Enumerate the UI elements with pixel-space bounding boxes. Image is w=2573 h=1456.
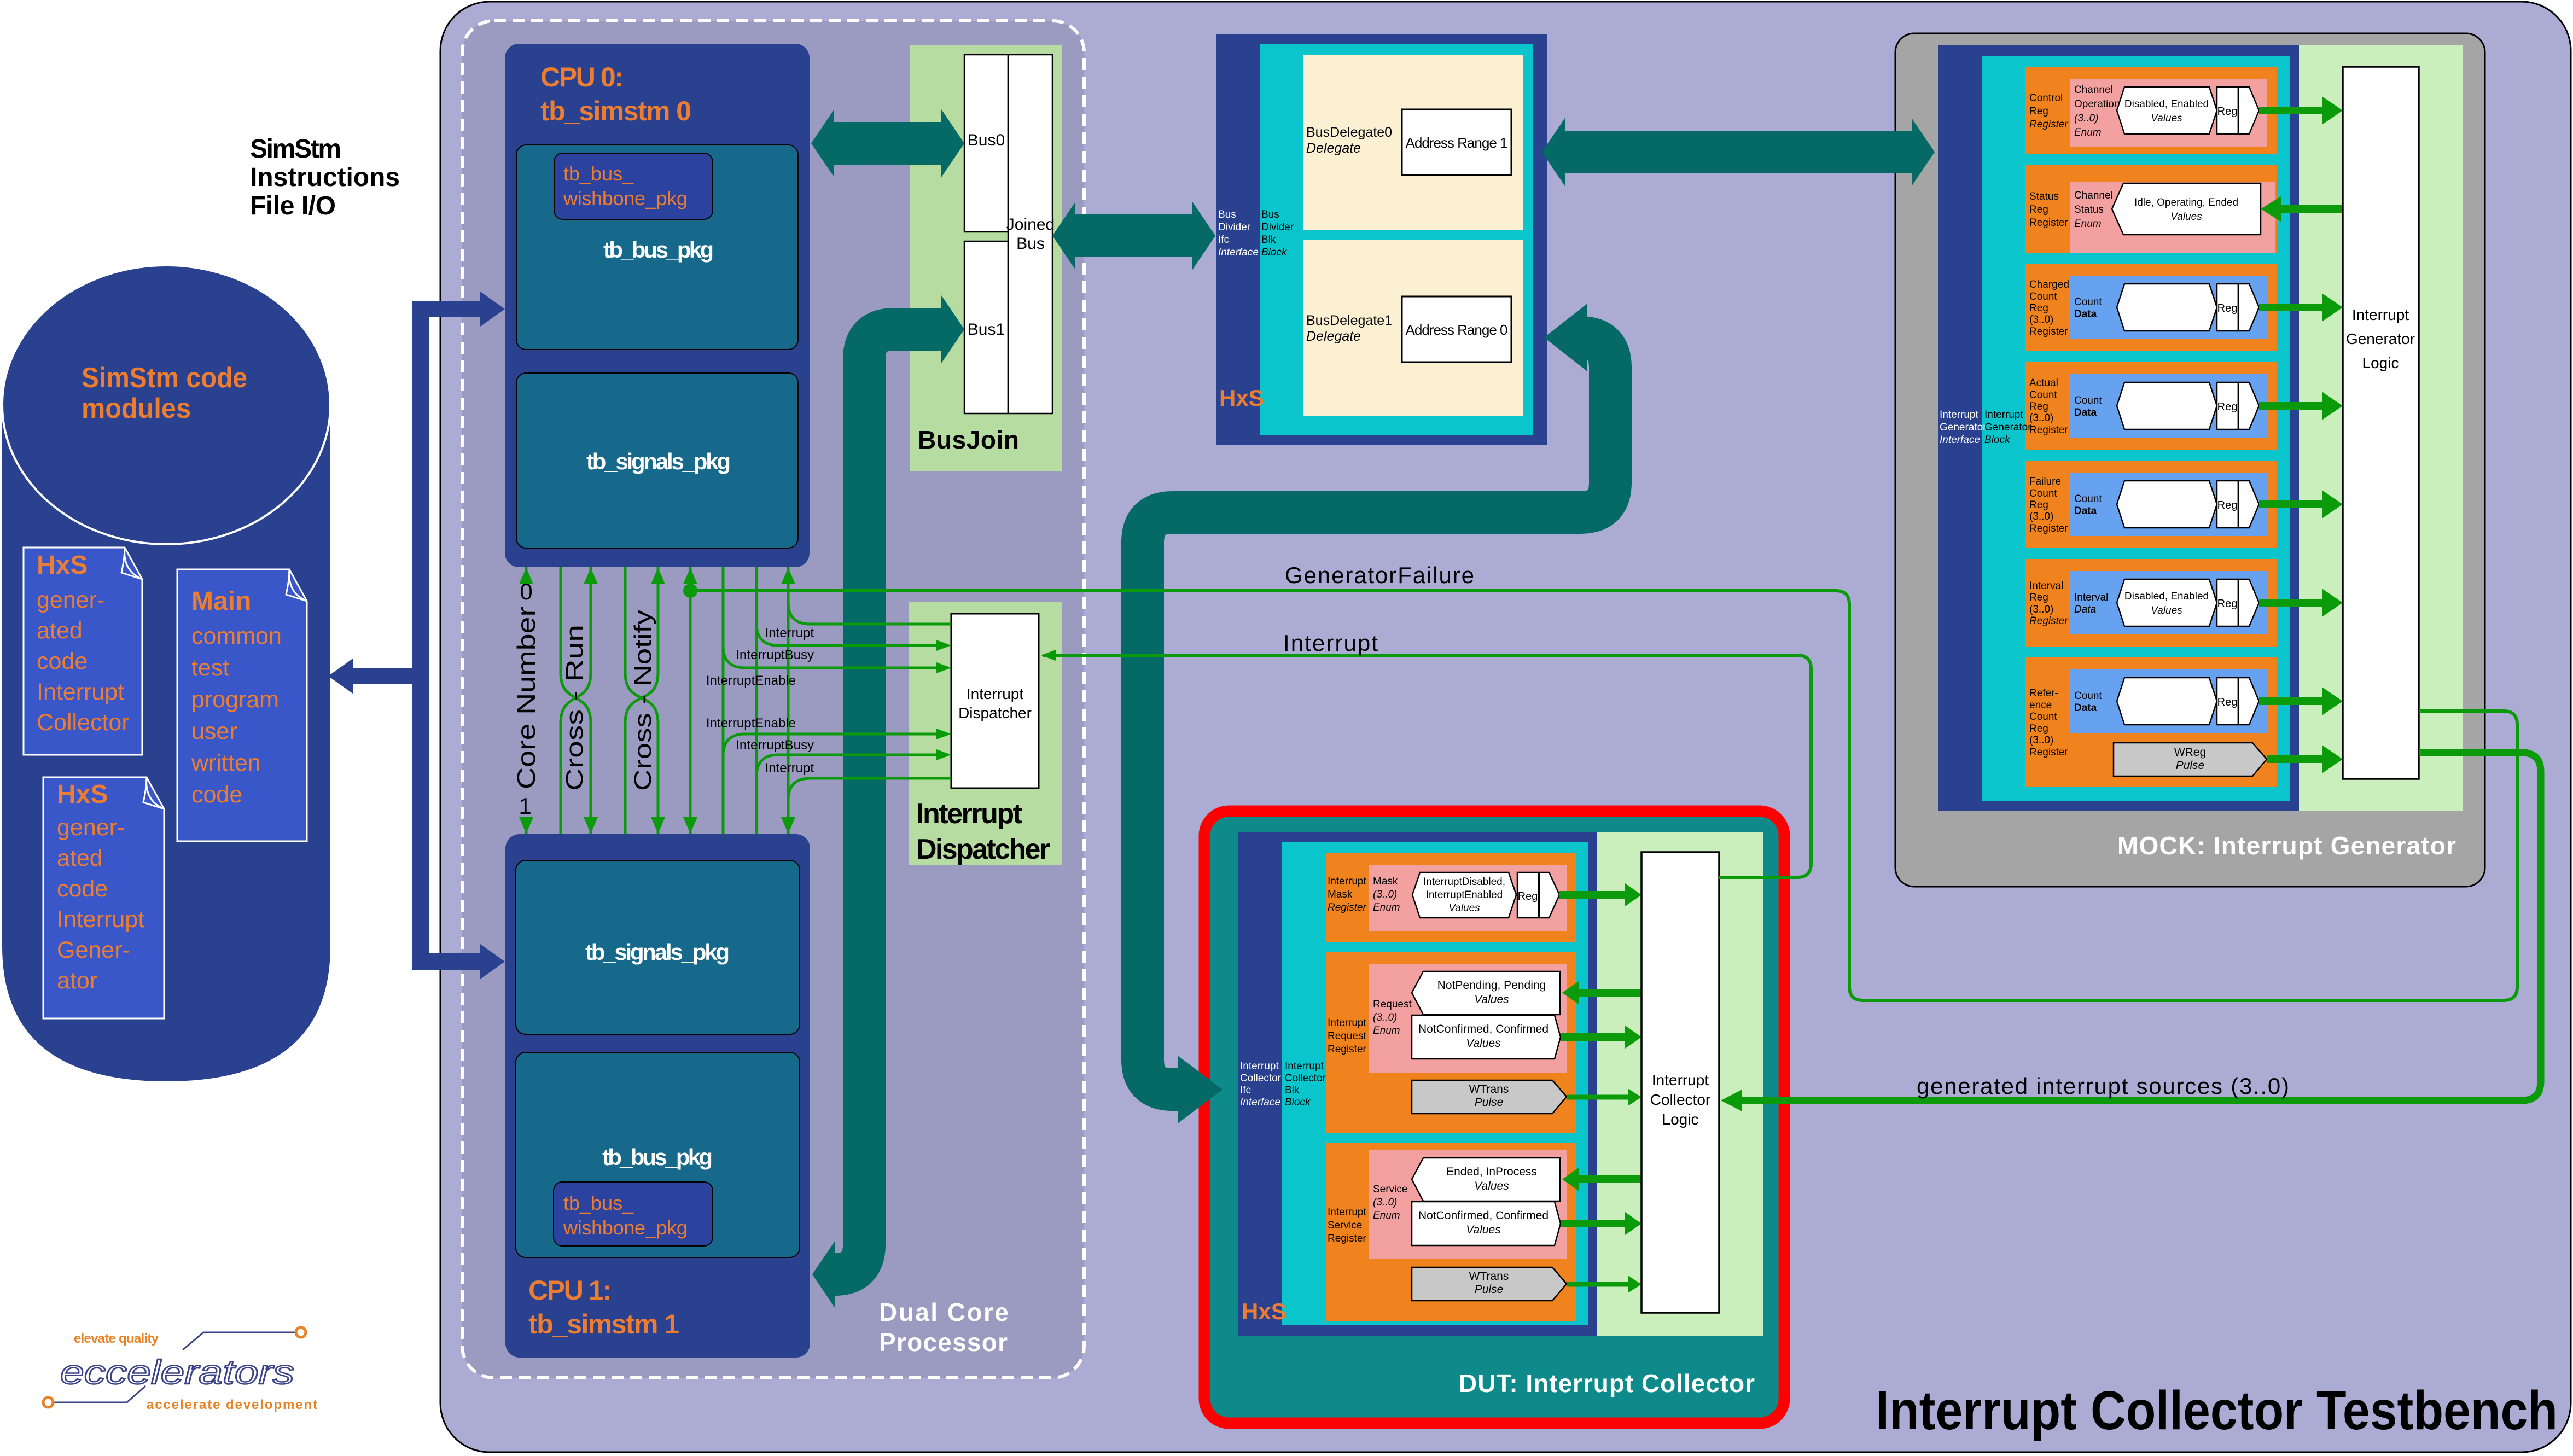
svg-text:BusDelegate1: BusDelegate1 <box>1306 313 1392 328</box>
svg-text:Reg: Reg <box>2217 696 2238 708</box>
svg-text:Blk: Blk <box>1285 1085 1300 1096</box>
svg-text:Reg: Reg <box>2029 302 2048 314</box>
svg-text:Collector: Collector <box>37 709 130 736</box>
svg-text:BusDelegate0: BusDelegate0 <box>1306 125 1392 140</box>
svg-text:Values: Values <box>1474 993 1509 1006</box>
svg-text:Blk: Blk <box>1261 234 1276 246</box>
svg-text:(3..0): (3..0) <box>2029 314 2053 325</box>
svg-text:Disabled, Enabled: Disabled, Enabled <box>2124 98 2209 110</box>
svg-text:Register: Register <box>1328 1044 1366 1055</box>
svg-text:Data: Data <box>2074 308 2097 320</box>
svg-text:Gener-: Gener- <box>57 937 130 963</box>
svg-text:Logic: Logic <box>1662 1111 1699 1128</box>
svg-text:Divider: Divider <box>1218 222 1251 233</box>
svg-text:Interrupt: Interrupt <box>1283 630 1378 656</box>
svg-text:wishbone_pkg: wishbone_pkg <box>563 1216 688 1239</box>
svg-text:Enum: Enum <box>2074 218 2102 230</box>
svg-text:Reg: Reg <box>2217 499 2238 511</box>
svg-text:Status: Status <box>2074 204 2104 216</box>
svg-text:Dispatcher: Dispatcher <box>958 704 1032 721</box>
svg-text:Pulse: Pulse <box>1475 1096 1504 1109</box>
svg-text:Mask: Mask <box>1328 889 1353 900</box>
svg-text:Ifc: Ifc <box>1240 1085 1251 1096</box>
svg-text:tb_bus_pkg: tb_bus_pkg <box>603 237 714 263</box>
svg-text:Generator: Generator <box>1940 422 1987 433</box>
svg-text:CPU 0:: CPU 0: <box>540 62 624 92</box>
svg-text:tb_simstm 0: tb_simstm 0 <box>540 96 691 126</box>
svg-text:Idle, Operating, Ended: Idle, Operating, Ended <box>2134 197 2238 208</box>
svg-text:Pulse: Pulse <box>2176 759 2205 772</box>
svg-text:Interrupt: Interrupt <box>1240 1061 1279 1072</box>
svg-text:Enum: Enum <box>1373 1025 1400 1036</box>
svg-text:InterruptBusy: InterruptBusy <box>736 738 814 753</box>
svg-text:generated interrupt sources (3: generated interrupt sources (3..0) <box>1917 1073 2289 1099</box>
svg-text:Actual: Actual <box>2029 377 2058 389</box>
svg-text:Count: Count <box>2074 493 2102 505</box>
svg-text:Register: Register <box>2029 523 2068 534</box>
svg-text:InterruptEnable: InterruptEnable <box>706 673 796 688</box>
svg-text:Interrupt: Interrupt <box>1328 1207 1366 1218</box>
svg-text:test: test <box>191 655 229 681</box>
svg-text:Reg: Reg <box>2029 592 2048 603</box>
svg-text:(3..0): (3..0) <box>1373 889 1397 900</box>
svg-text:Interrupt: Interrupt <box>916 798 1022 830</box>
svg-text:0: 0 <box>520 579 532 604</box>
svg-text:Refer-: Refer- <box>2029 688 2058 699</box>
svg-text:Instructions: Instructions <box>250 163 400 192</box>
svg-text:Interrupt: Interrupt <box>2352 306 2409 323</box>
svg-text:Block: Block <box>1984 434 2011 446</box>
svg-text:Logic: Logic <box>2362 354 2399 371</box>
svg-text:Count: Count <box>2074 690 2102 702</box>
svg-text:WTrans: WTrans <box>1469 1083 1509 1096</box>
svg-text:common: common <box>191 623 282 649</box>
svg-text:NotPending, Pending: NotPending, Pending <box>1437 979 1546 992</box>
svg-text:ated: ated <box>57 845 103 871</box>
svg-text:Divider: Divider <box>1261 222 1294 233</box>
svg-text:Interface: Interface <box>1940 434 1980 446</box>
svg-text:Charged: Charged <box>2029 279 2069 290</box>
svg-text:Mask: Mask <box>1373 876 1398 887</box>
svg-text:Count: Count <box>2029 291 2057 302</box>
svg-text:Failure: Failure <box>2029 476 2061 487</box>
svg-text:Pulse: Pulse <box>1475 1283 1504 1296</box>
svg-text:Collector: Collector <box>1650 1091 1710 1108</box>
svg-text:code: code <box>37 648 88 674</box>
svg-text:Register: Register <box>1328 1233 1366 1244</box>
svg-text:Reg: Reg <box>2029 106 2048 117</box>
svg-text:Control: Control <box>2029 92 2063 104</box>
svg-text:Status: Status <box>2029 191 2059 202</box>
svg-text:CPU 1:: CPU 1: <box>528 1275 612 1306</box>
svg-text:Reg: Reg <box>2217 401 2238 413</box>
svg-text:HxS: HxS <box>37 551 88 580</box>
svg-text:Register: Register <box>2029 217 2068 229</box>
svg-text:Interrupt: Interrupt <box>967 685 1023 702</box>
svg-text:Interrupt: Interrupt <box>1328 1017 1366 1029</box>
svg-text:Interrupt: Interrupt <box>1984 409 2023 421</box>
svg-text:Values: Values <box>2151 605 2182 616</box>
svg-text:code: code <box>57 876 108 902</box>
svg-text:Collector: Collector <box>1285 1073 1326 1084</box>
svg-text:WReg: WReg <box>2174 746 2206 759</box>
svg-text:tb_simstm 1: tb_simstm 1 <box>528 1309 679 1339</box>
svg-text:Bus0: Bus0 <box>968 131 1005 149</box>
svg-text:Service: Service <box>1373 1184 1407 1195</box>
svg-text:Values: Values <box>2170 211 2202 223</box>
svg-text:ated: ated <box>37 618 83 644</box>
svg-text:WTrans: WTrans <box>1469 1270 1509 1283</box>
svg-text:Operation: Operation <box>2074 98 2120 110</box>
svg-text:Bus1: Bus1 <box>968 321 1005 339</box>
svg-text:tb_signals_pkg: tb_signals_pkg <box>586 449 731 474</box>
svg-text:Cross - Run: Cross - Run <box>561 625 588 791</box>
svg-text:elevate quality: elevate quality <box>74 1331 159 1346</box>
svg-text:Ifc: Ifc <box>1218 234 1229 246</box>
svg-text:Enum: Enum <box>1373 902 1400 913</box>
svg-text:Enum: Enum <box>1373 1210 1400 1221</box>
svg-text:Register: Register <box>2029 424 2068 436</box>
svg-text:Reg: Reg <box>2029 204 2048 216</box>
svg-text:Service: Service <box>1328 1220 1362 1231</box>
svg-text:Register: Register <box>2029 326 2068 337</box>
svg-text:eccelerators: eccelerators <box>60 1354 294 1391</box>
svg-text:Values: Values <box>2151 113 2182 124</box>
svg-text:Interface: Interface <box>1240 1097 1280 1108</box>
svg-text:Register: Register <box>2029 747 2068 758</box>
svg-text:Bus: Bus <box>1016 235 1045 253</box>
svg-text:GeneratorFailure: GeneratorFailure <box>1285 562 1474 588</box>
svg-text:Count: Count <box>2029 389 2057 401</box>
svg-text:Interrupt: Interrupt <box>1940 409 1978 421</box>
svg-text:Interrupt: Interrupt <box>765 761 814 776</box>
svg-text:Bus: Bus <box>1218 209 1236 220</box>
svg-text:Enum: Enum <box>2074 127 2102 138</box>
svg-text:Interrupt: Interrupt <box>1285 1061 1324 1072</box>
svg-text:BusJoin: BusJoin <box>918 426 1019 454</box>
svg-text:Bus: Bus <box>1261 209 1279 220</box>
svg-text:Interrupt: Interrupt <box>1328 876 1366 887</box>
svg-text:Generator: Generator <box>1984 422 2031 433</box>
svg-text:Data: Data <box>2074 702 2097 714</box>
svg-text:Processor: Processor <box>879 1328 1008 1356</box>
svg-text:InterruptEnable: InterruptEnable <box>706 716 796 731</box>
svg-text:Address Range 1: Address Range 1 <box>1406 135 1508 151</box>
svg-text:Values: Values <box>1448 902 1480 914</box>
svg-text:(3..0): (3..0) <box>2029 604 2053 615</box>
svg-text:Data: Data <box>2074 505 2097 517</box>
svg-text:Address Range 0: Address Range 0 <box>1406 322 1508 338</box>
svg-text:Interrupt: Interrupt <box>1652 1071 1709 1088</box>
svg-text:InterruptBusy: InterruptBusy <box>736 648 814 662</box>
svg-text:Dispatcher: Dispatcher <box>916 834 1050 865</box>
svg-text:(3..0): (3..0) <box>2029 412 2053 424</box>
svg-text:Core Number: Core Number <box>512 607 540 789</box>
svg-text:Data: Data <box>2074 604 2096 615</box>
svg-text:Reg: Reg <box>1518 890 1538 902</box>
svg-text:gener-: gener- <box>37 587 104 613</box>
svg-text:Reg: Reg <box>2217 598 2238 610</box>
svg-text:Dual Core: Dual Core <box>879 1298 1009 1326</box>
svg-text:MOCK: Interrupt Generator: MOCK: Interrupt Generator <box>2117 831 2456 860</box>
svg-text:Reg: Reg <box>2029 499 2048 511</box>
svg-text:Ended, InProcess: Ended, InProcess <box>1446 1166 1537 1178</box>
svg-text:wishbone_pkg: wishbone_pkg <box>563 187 688 209</box>
svg-text:Joined: Joined <box>1006 216 1055 234</box>
svg-text:(3..0): (3..0) <box>1373 1197 1397 1208</box>
svg-text:Interval: Interval <box>2029 580 2063 592</box>
svg-text:Interrupt: Interrupt <box>37 679 124 705</box>
svg-text:InterruptDisabled,: InterruptDisabled, <box>1423 876 1505 888</box>
svg-text:program: program <box>191 686 279 713</box>
svg-text:written: written <box>191 750 261 776</box>
svg-text:Data: Data <box>2074 407 2097 418</box>
svg-text:SimStm code: SimStm code <box>82 362 247 394</box>
svg-text:ator: ator <box>57 968 97 994</box>
svg-text:(3..0): (3..0) <box>2029 735 2053 746</box>
svg-text:InterruptEnabled: InterruptEnabled <box>1426 889 1503 901</box>
svg-text:tb_bus_: tb_bus_ <box>563 162 634 185</box>
svg-text:tb_signals_pkg: tb_signals_pkg <box>585 939 730 965</box>
svg-text:Main: Main <box>191 587 251 616</box>
svg-text:(3..0): (3..0) <box>1373 1012 1397 1023</box>
svg-text:HxS: HxS <box>1219 385 1264 411</box>
svg-text:(3..0): (3..0) <box>2074 113 2098 124</box>
svg-text:Delegate: Delegate <box>1306 141 1361 156</box>
svg-text:tb_bus_: tb_bus_ <box>563 1192 634 1214</box>
svg-text:Reg: Reg <box>2217 302 2238 315</box>
svg-text:Register: Register <box>2029 119 2068 130</box>
svg-text:Values: Values <box>1466 1224 1501 1236</box>
svg-text:Count: Count <box>2074 395 2102 406</box>
svg-text:gener-: gener- <box>57 814 125 841</box>
svg-text:Values: Values <box>1466 1037 1501 1050</box>
svg-text:Reg: Reg <box>2217 106 2238 118</box>
svg-text:HxS: HxS <box>1242 1298 1286 1324</box>
svg-text:Delegate: Delegate <box>1306 329 1361 344</box>
svg-text:tb_bus_pkg: tb_bus_pkg <box>602 1144 713 1170</box>
svg-text:code: code <box>191 782 242 808</box>
svg-text:Disabled, Enabled: Disabled, Enabled <box>2124 591 2209 602</box>
svg-text:user: user <box>191 718 237 744</box>
svg-text:Collector: Collector <box>1240 1073 1282 1084</box>
svg-text:(3..0): (3..0) <box>2029 511 2053 522</box>
svg-text:Cross - Notify: Cross - Notify <box>630 610 656 791</box>
svg-text:Count: Count <box>2074 296 2102 308</box>
svg-text:File I/O: File I/O <box>250 191 336 220</box>
svg-text:Block: Block <box>1285 1097 1311 1108</box>
svg-text:Channel: Channel <box>2074 190 2113 201</box>
svg-text:Interface: Interface <box>1218 247 1259 258</box>
svg-text:Register: Register <box>1328 902 1366 913</box>
svg-text:Interval: Interval <box>2074 592 2108 603</box>
svg-text:NotConfirmed, Confirmed: NotConfirmed, Confirmed <box>1418 1023 1549 1035</box>
svg-text:HxS: HxS <box>57 780 108 809</box>
svg-text:modules: modules <box>82 393 191 424</box>
svg-text:NotConfirmed, Confirmed: NotConfirmed, Confirmed <box>1418 1209 1549 1222</box>
svg-text:DUT: Interrupt Collector: DUT: Interrupt Collector <box>1459 1369 1755 1397</box>
svg-text:accelerate development: accelerate development <box>147 1397 317 1412</box>
svg-text:Interrupt Collector Testbench: Interrupt Collector Testbench <box>1876 1380 2558 1441</box>
svg-text:Count: Count <box>2029 488 2057 499</box>
svg-text:Request: Request <box>1373 999 1412 1010</box>
svg-text:Channel: Channel <box>2074 84 2113 96</box>
svg-text:Count: Count <box>2029 711 2057 723</box>
svg-text:Reg: Reg <box>2029 401 2048 412</box>
svg-text:Interrupt: Interrupt <box>57 906 144 933</box>
svg-text:Values: Values <box>1474 1180 1509 1192</box>
svg-text:Block: Block <box>1261 247 1288 258</box>
svg-text:Interrupt: Interrupt <box>765 626 814 640</box>
svg-text:Reg: Reg <box>2029 723 2048 735</box>
svg-text:1: 1 <box>519 793 531 819</box>
svg-text:SimStm: SimStm <box>250 135 341 164</box>
svg-text:Request: Request <box>1328 1030 1366 1042</box>
svg-text:ence: ence <box>2029 700 2052 711</box>
svg-text:Generator: Generator <box>2346 330 2415 347</box>
svg-text:Register: Register <box>2029 615 2068 627</box>
